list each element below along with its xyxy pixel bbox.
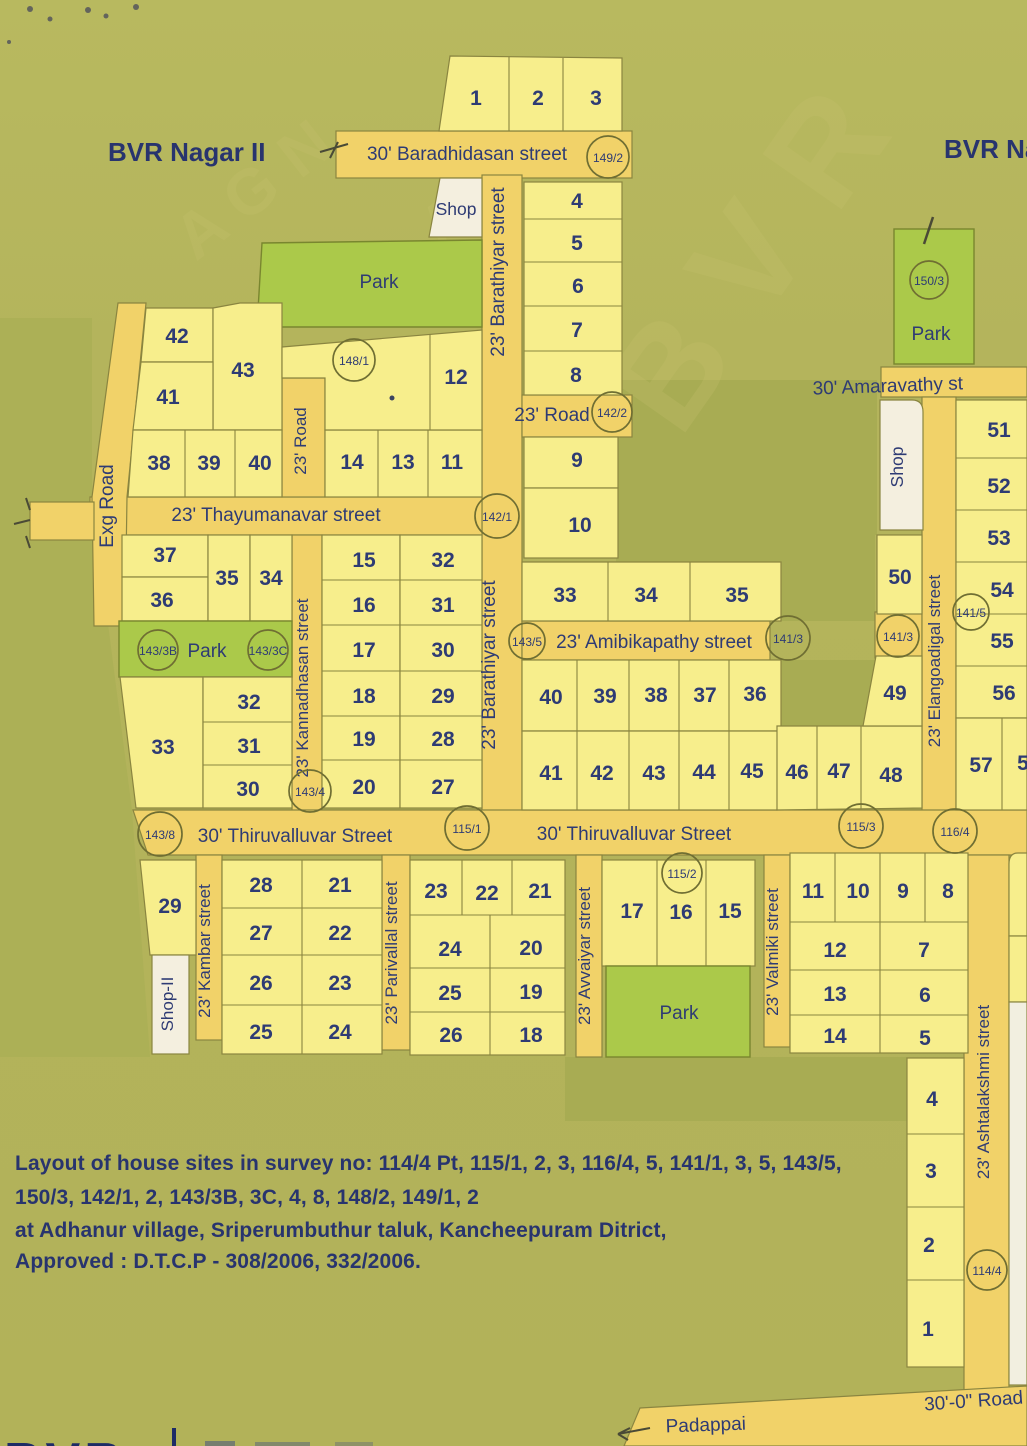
svg-text:Park: Park bbox=[659, 1003, 699, 1024]
svg-text:10: 10 bbox=[568, 514, 591, 537]
svg-text:38: 38 bbox=[147, 452, 171, 475]
svg-text:51: 51 bbox=[987, 419, 1011, 442]
svg-text:Shop: Shop bbox=[887, 447, 907, 488]
svg-text:12: 12 bbox=[823, 939, 846, 962]
svg-text:142/1: 142/1 bbox=[482, 510, 512, 524]
svg-text:36: 36 bbox=[743, 683, 766, 706]
svg-text:BVR Nagar II: BVR Nagar II bbox=[108, 137, 266, 167]
svg-text:35: 35 bbox=[725, 584, 749, 607]
svg-text:114/4: 114/4 bbox=[972, 1264, 1001, 1278]
svg-text:41: 41 bbox=[539, 762, 563, 785]
svg-text:8: 8 bbox=[570, 364, 582, 387]
svg-text:10: 10 bbox=[846, 880, 869, 903]
svg-text:Layout of house sites in surve: Layout of house sites in survey no: 114/… bbox=[15, 1152, 842, 1175]
svg-text:Park: Park bbox=[359, 272, 399, 293]
svg-text:52: 52 bbox=[987, 475, 1010, 498]
svg-text:56: 56 bbox=[992, 682, 1015, 705]
svg-text:24: 24 bbox=[328, 1021, 352, 1044]
svg-text:18: 18 bbox=[352, 685, 376, 708]
svg-text:1: 1 bbox=[470, 87, 482, 110]
svg-text:20: 20 bbox=[519, 937, 542, 960]
svg-text:37: 37 bbox=[153, 544, 176, 567]
svg-text:3: 3 bbox=[925, 1160, 937, 1183]
svg-text:115/1: 115/1 bbox=[452, 822, 481, 836]
svg-text:24: 24 bbox=[438, 938, 462, 961]
svg-text:27: 27 bbox=[249, 922, 272, 945]
svg-text:57: 57 bbox=[969, 754, 992, 777]
svg-text:3: 3 bbox=[590, 87, 602, 110]
svg-text:41: 41 bbox=[156, 386, 180, 409]
svg-text:5: 5 bbox=[1017, 752, 1027, 775]
svg-text:5: 5 bbox=[919, 1027, 931, 1050]
svg-text:23' Amibikapathy street: 23' Amibikapathy street bbox=[556, 632, 753, 653]
svg-text:32: 32 bbox=[431, 549, 454, 572]
svg-text:25: 25 bbox=[438, 982, 462, 1005]
svg-text:23' Barathiyar street: 23' Barathiyar street bbox=[479, 580, 500, 750]
svg-text:6: 6 bbox=[572, 275, 584, 298]
svg-text:32: 32 bbox=[237, 691, 260, 714]
svg-text:42: 42 bbox=[590, 762, 613, 785]
svg-text:9: 9 bbox=[571, 449, 583, 472]
svg-text:31: 31 bbox=[237, 735, 261, 758]
svg-text:28: 28 bbox=[431, 728, 455, 751]
svg-text:53: 53 bbox=[987, 527, 1010, 550]
svg-text:23: 23 bbox=[328, 972, 351, 995]
svg-text:21: 21 bbox=[528, 880, 552, 903]
svg-text:141/3: 141/3 bbox=[773, 632, 803, 646]
svg-text:143/3B: 143/3B bbox=[139, 644, 177, 658]
svg-text:6: 6 bbox=[919, 984, 931, 1007]
svg-text:150/3: 150/3 bbox=[914, 274, 944, 288]
svg-text:143/3C: 143/3C bbox=[249, 644, 288, 658]
svg-text:115/2: 115/2 bbox=[667, 867, 696, 881]
svg-text:23' Parivallal street: 23' Parivallal street bbox=[382, 881, 401, 1024]
svg-text:8: 8 bbox=[942, 880, 954, 903]
svg-text:23' Thayumanavar street: 23' Thayumanavar street bbox=[171, 505, 381, 526]
svg-text:29: 29 bbox=[431, 685, 454, 708]
svg-text:143/4: 143/4 bbox=[295, 785, 325, 799]
svg-text:17: 17 bbox=[620, 900, 643, 923]
svg-text:18: 18 bbox=[519, 1024, 543, 1047]
svg-text:36: 36 bbox=[150, 589, 173, 612]
svg-text:27: 27 bbox=[431, 776, 454, 799]
svg-text:141/3: 141/3 bbox=[883, 630, 913, 644]
svg-text:150/3, 142/1, 2, 143/3B, 3C, 4: 150/3, 142/1, 2, 143/3B, 3C, 4, 8, 148/2… bbox=[15, 1186, 479, 1209]
svg-text:Approved : D.T.C.P - 308/2006,: Approved : D.T.C.P - 308/2006, 332/2006. bbox=[15, 1250, 421, 1273]
svg-text:20: 20 bbox=[352, 776, 375, 799]
svg-text:34: 34 bbox=[259, 567, 283, 590]
svg-text:2: 2 bbox=[532, 87, 544, 110]
svg-text:39: 39 bbox=[197, 452, 220, 475]
svg-text:39: 39 bbox=[593, 685, 616, 708]
svg-text:34: 34 bbox=[634, 584, 658, 607]
svg-text:43: 43 bbox=[642, 762, 665, 785]
svg-text:30: 30 bbox=[236, 778, 259, 801]
svg-text:22: 22 bbox=[328, 922, 351, 945]
svg-text:23' Avvaiyar street: 23' Avvaiyar street bbox=[575, 887, 594, 1025]
svg-text:4: 4 bbox=[571, 190, 583, 213]
svg-text:143/5: 143/5 bbox=[512, 635, 542, 649]
svg-text:23' Elangoadigal street: 23' Elangoadigal street bbox=[925, 575, 944, 748]
svg-text:15: 15 bbox=[352, 549, 376, 572]
svg-text:149/2: 149/2 bbox=[593, 151, 623, 165]
svg-text:40: 40 bbox=[248, 452, 271, 475]
svg-text:31: 31 bbox=[431, 594, 455, 617]
svg-text:141/5: 141/5 bbox=[956, 606, 986, 620]
svg-text:26: 26 bbox=[439, 1024, 462, 1047]
svg-text:4: 4 bbox=[926, 1088, 938, 1111]
svg-text:35: 35 bbox=[215, 567, 239, 590]
svg-text:11: 11 bbox=[441, 451, 464, 474]
svg-text:30: 30 bbox=[431, 639, 454, 662]
svg-text:23' Barathiyar street: 23' Barathiyar street bbox=[488, 187, 509, 357]
svg-text:11: 11 bbox=[802, 880, 825, 903]
svg-text:14: 14 bbox=[823, 1025, 847, 1048]
svg-text:16: 16 bbox=[352, 594, 375, 617]
svg-text:21: 21 bbox=[328, 874, 352, 897]
svg-text:40: 40 bbox=[539, 686, 562, 709]
svg-text:16: 16 bbox=[669, 901, 692, 924]
svg-text:23' Ashtalakshmi street: 23' Ashtalakshmi street bbox=[974, 1005, 993, 1180]
svg-text:55: 55 bbox=[990, 630, 1014, 653]
svg-text:143/8: 143/8 bbox=[145, 828, 175, 842]
svg-text:37: 37 bbox=[693, 684, 716, 707]
svg-text:5: 5 bbox=[571, 232, 583, 255]
svg-text:Padappai: Padappai bbox=[665, 1414, 746, 1438]
svg-text:BVR: BVR bbox=[4, 1433, 126, 1446]
svg-text:33: 33 bbox=[151, 736, 174, 759]
svg-text:26: 26 bbox=[249, 972, 272, 995]
svg-text:33: 33 bbox=[553, 584, 576, 607]
svg-text:46: 46 bbox=[785, 761, 808, 784]
svg-text:at Adhanur village, Sriperumbu: at Adhanur village, Sriperumbuthur taluk… bbox=[15, 1219, 667, 1242]
svg-text:23' Road: 23' Road bbox=[291, 407, 310, 475]
svg-text:1: 1 bbox=[922, 1318, 934, 1341]
svg-text:13: 13 bbox=[823, 983, 846, 1006]
svg-text:17: 17 bbox=[352, 639, 375, 662]
svg-text:23' Road: 23' Road bbox=[514, 405, 589, 426]
svg-text:47: 47 bbox=[827, 760, 850, 783]
svg-text:23' Kambar street: 23' Kambar street bbox=[195, 884, 214, 1018]
svg-text:Park: Park bbox=[187, 641, 227, 662]
svg-text:2: 2 bbox=[923, 1234, 935, 1257]
svg-text:50: 50 bbox=[888, 566, 911, 589]
svg-text:54: 54 bbox=[990, 579, 1014, 602]
svg-text:142/2: 142/2 bbox=[597, 406, 627, 420]
svg-text:30' Baradhidasan street: 30' Baradhidasan street bbox=[367, 144, 568, 165]
svg-text:30' Thiruvalluvar Street: 30' Thiruvalluvar Street bbox=[537, 824, 732, 845]
svg-text:12: 12 bbox=[444, 366, 467, 389]
svg-text:19: 19 bbox=[519, 981, 542, 1004]
svg-text:45: 45 bbox=[740, 760, 764, 783]
svg-text:23' Valmiki street: 23' Valmiki street bbox=[763, 888, 782, 1016]
svg-text:7: 7 bbox=[918, 939, 930, 962]
svg-text:29: 29 bbox=[158, 895, 181, 918]
svg-text:7: 7 bbox=[571, 319, 583, 342]
svg-text:25: 25 bbox=[249, 1021, 273, 1044]
svg-text:23: 23 bbox=[424, 880, 447, 903]
svg-text:Shop: Shop bbox=[436, 199, 477, 219]
svg-text:19: 19 bbox=[352, 728, 375, 751]
svg-text:13: 13 bbox=[391, 451, 414, 474]
svg-text:49: 49 bbox=[883, 682, 906, 705]
svg-text:BVR Na: BVR Na bbox=[944, 134, 1027, 164]
svg-text:28: 28 bbox=[249, 874, 273, 897]
svg-text:116/4: 116/4 bbox=[940, 825, 969, 839]
svg-text:48: 48 bbox=[879, 764, 903, 787]
svg-text:43: 43 bbox=[231, 359, 254, 382]
svg-text:23' Kannadhasan street: 23' Kannadhasan street bbox=[293, 598, 312, 777]
svg-text:15: 15 bbox=[718, 900, 742, 923]
svg-text:115/3: 115/3 bbox=[846, 820, 875, 834]
svg-text:30' Thiruvalluvar Street: 30' Thiruvalluvar Street bbox=[198, 826, 393, 847]
svg-text:44: 44 bbox=[692, 761, 716, 784]
svg-text:Shop-II: Shop-II bbox=[158, 977, 177, 1032]
svg-text:42: 42 bbox=[165, 325, 188, 348]
svg-text:Exg Road: Exg Road bbox=[97, 464, 118, 547]
svg-text:148/1: 148/1 bbox=[339, 354, 369, 368]
svg-text:14: 14 bbox=[340, 451, 364, 474]
svg-text:9: 9 bbox=[897, 880, 909, 903]
svg-text:Park: Park bbox=[911, 324, 951, 345]
svg-text:22: 22 bbox=[475, 882, 498, 905]
svg-text:38: 38 bbox=[644, 684, 668, 707]
